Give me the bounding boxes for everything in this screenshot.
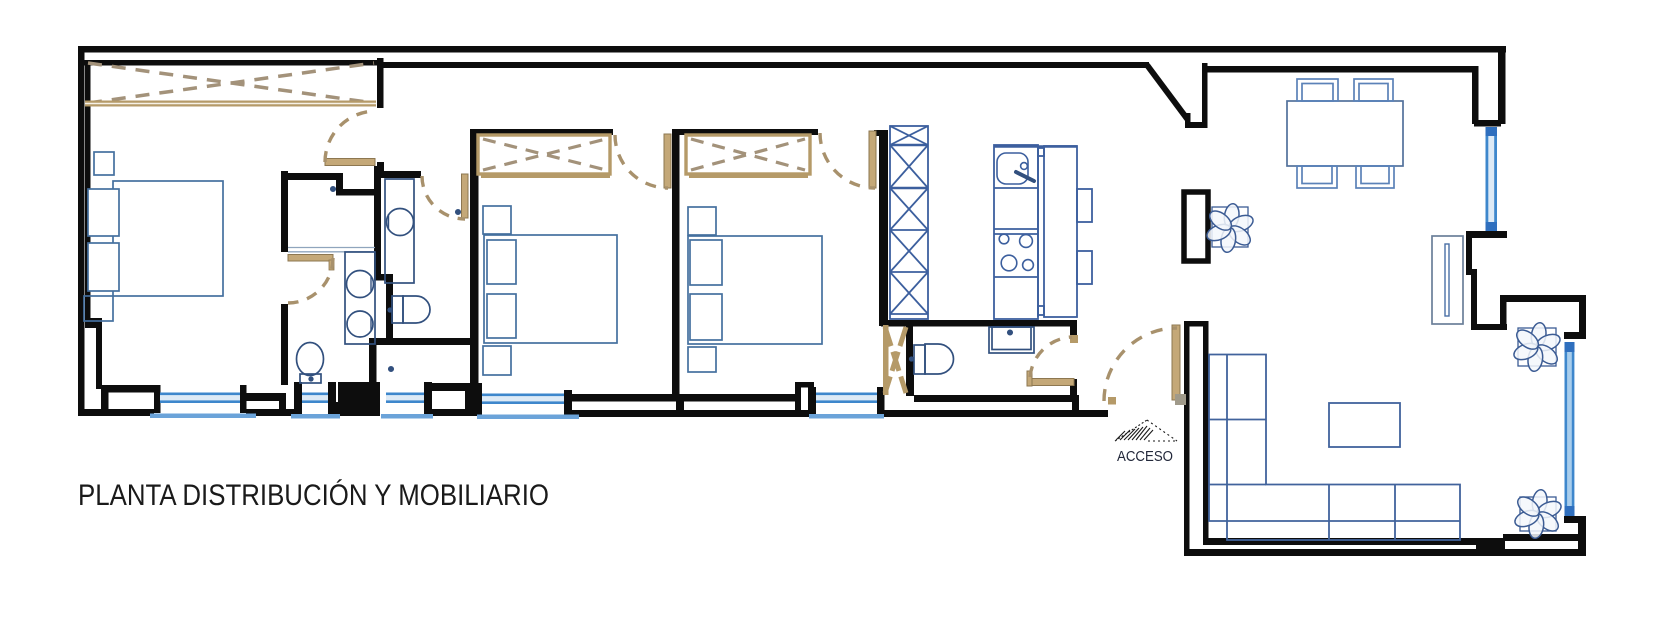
svg-text:PLANTA DISTRIBUCIÓN Y MOBILIAR: PLANTA DISTRIBUCIÓN Y MOBILIARIO: [78, 479, 549, 512]
svg-text:ACCESO: ACCESO: [1117, 448, 1173, 465]
